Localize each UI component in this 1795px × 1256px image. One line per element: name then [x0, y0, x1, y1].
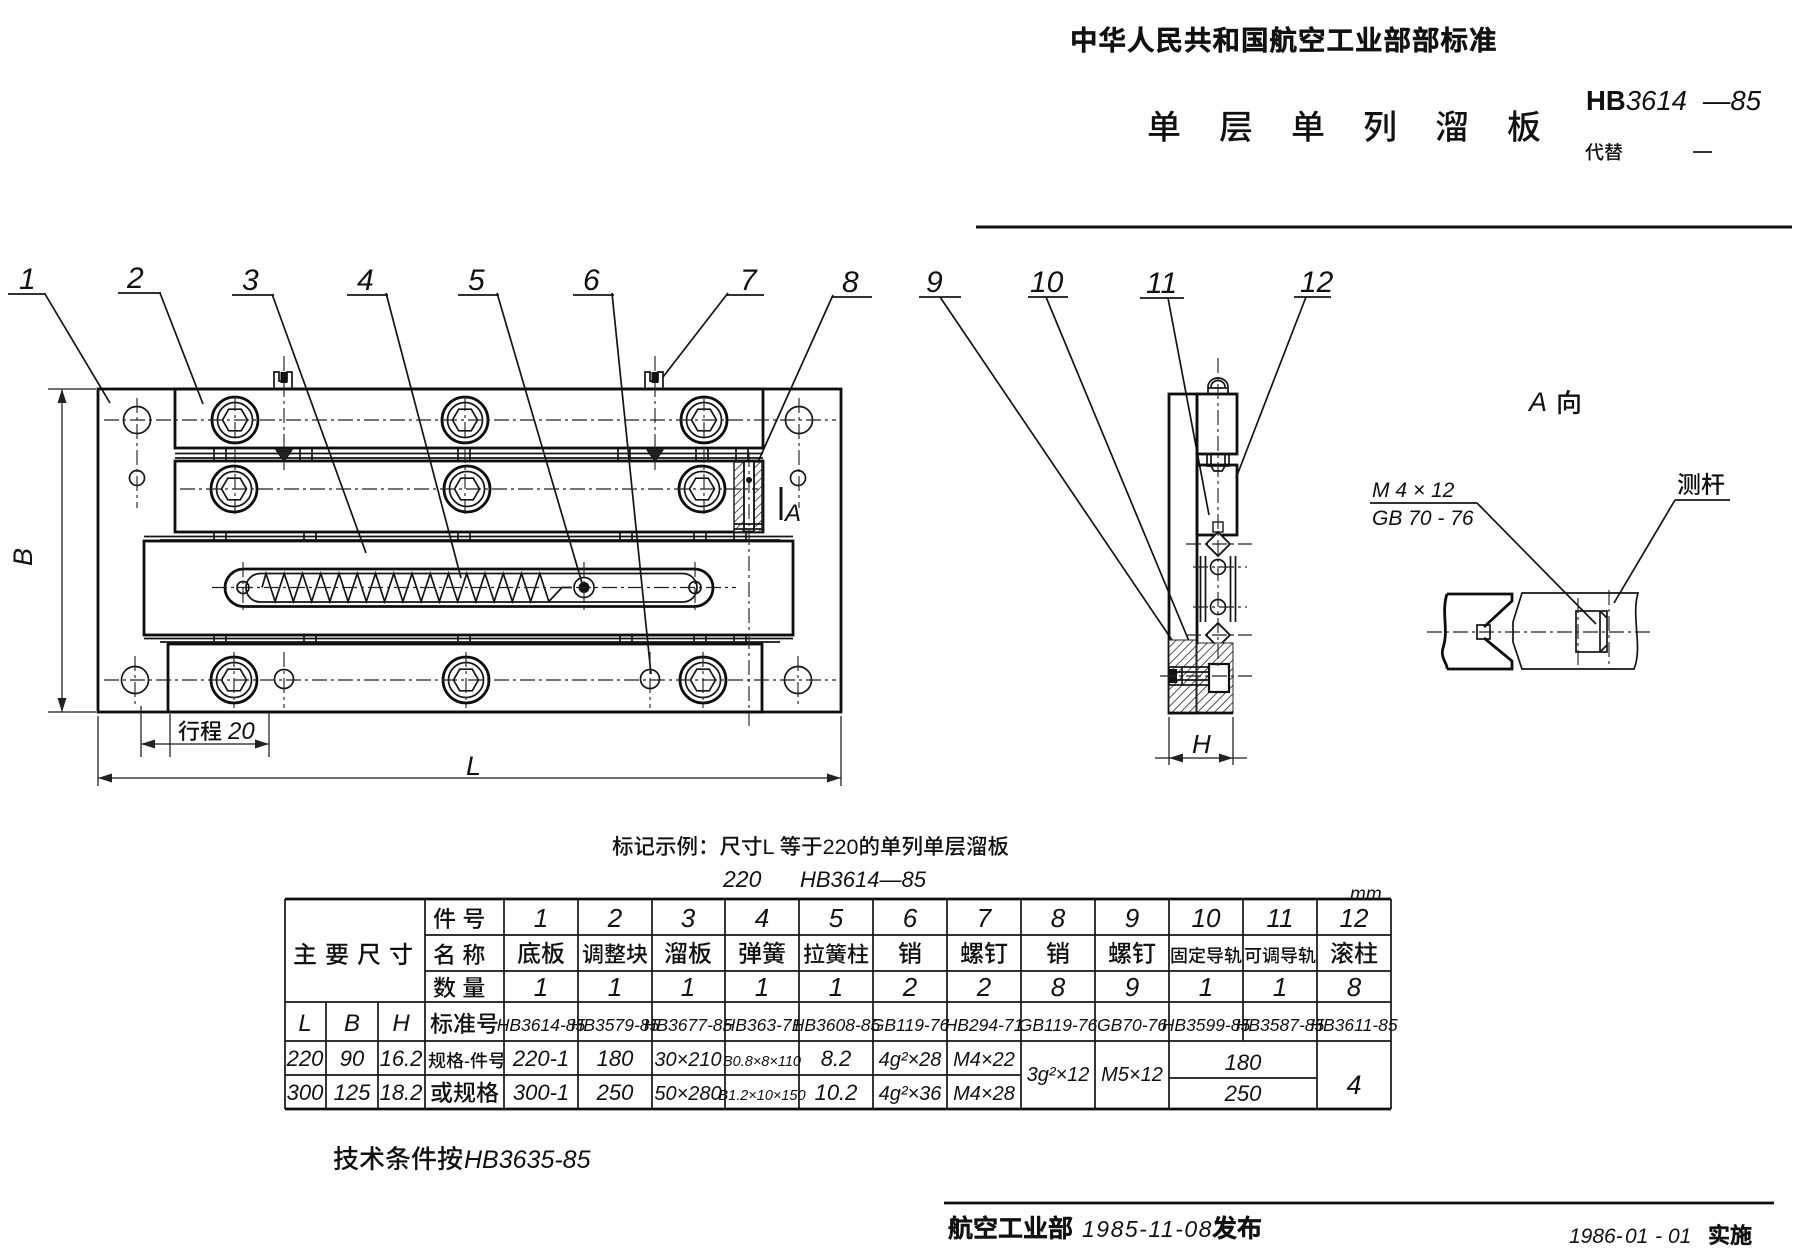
svg-text:调整块: 调整块: [582, 937, 648, 969]
svg-text:发布: 发布: [1211, 1209, 1262, 1245]
svg-text:7: 7: [977, 903, 993, 933]
svg-text:向: 向: [1556, 383, 1582, 420]
svg-text:HB3608-85: HB3608-85: [792, 1015, 881, 1035]
svg-text:溜板: 溜板: [664, 934, 712, 969]
svg-text:220-1: 220-1: [512, 1046, 569, 1071]
svg-text:M4×28: M4×28: [953, 1083, 1015, 1105]
svg-text:01: 01: [1668, 1225, 1691, 1248]
svg-text:90: 90: [340, 1046, 365, 1071]
svg-text:销: 销: [898, 934, 922, 969]
svg-text:A: A: [1527, 387, 1547, 417]
svg-text:9: 9: [1125, 972, 1139, 1002]
svg-text:标准号: 标准号: [430, 1005, 499, 1039]
svg-text:销: 销: [1046, 934, 1070, 969]
svg-text:航空工业部: 航空工业部: [948, 1209, 1073, 1245]
svg-text:1: 1: [755, 972, 769, 1002]
svg-text:16.2: 16.2: [380, 1046, 423, 1071]
svg-text:1985-11-08: 1985-11-08: [1082, 1216, 1213, 1242]
svg-text:300: 300: [287, 1080, 324, 1105]
svg-text:1: 1: [534, 903, 548, 933]
svg-text:HB3611-85: HB3611-85: [1310, 1015, 1398, 1035]
svg-text:250: 250: [1224, 1081, 1262, 1106]
svg-text:10.2: 10.2: [815, 1080, 858, 1105]
svg-text:9: 9: [1125, 903, 1139, 933]
svg-text:L: L: [298, 1010, 311, 1037]
svg-text:220: 220: [286, 1046, 324, 1071]
svg-text:8: 8: [1051, 903, 1066, 933]
svg-text:中华人民共和国航空工业部部标准: 中华人民共和国航空工业部部标准: [1070, 18, 1498, 58]
svg-text:HB294-71: HB294-71: [945, 1015, 1024, 1035]
svg-text:180: 180: [597, 1046, 634, 1071]
svg-text:2: 2: [126, 262, 144, 295]
svg-text:12: 12: [1300, 266, 1334, 299]
svg-text:2: 2: [607, 903, 623, 933]
svg-text:M5×12: M5×12: [1101, 1064, 1163, 1086]
svg-text:8: 8: [1051, 972, 1066, 1002]
svg-text:螺钉: 螺钉: [960, 934, 1008, 969]
svg-text:H: H: [392, 1010, 410, 1037]
svg-text:180: 180: [1225, 1050, 1262, 1075]
svg-text:4g²×28: 4g²×28: [879, 1049, 942, 1071]
svg-text:8: 8: [842, 266, 859, 299]
svg-text:8: 8: [1347, 972, 1362, 1002]
svg-text:HB3677-85: HB3677-85: [644, 1015, 733, 1035]
svg-text:10: 10: [1030, 266, 1064, 299]
svg-text:1: 1: [829, 972, 843, 1002]
svg-text:规格-件号: 规格-件号: [428, 1047, 506, 1073]
svg-text:250: 250: [596, 1080, 634, 1105]
svg-text:-: -: [1655, 1225, 1662, 1248]
svg-text:HB3635-85: HB3635-85: [464, 1146, 591, 1174]
svg-text:螺钉: 螺钉: [1108, 934, 1156, 969]
svg-text:300-1: 300-1: [513, 1080, 569, 1105]
svg-text:H: H: [1192, 729, 1211, 759]
svg-text:数 量: 数 量: [433, 969, 485, 1003]
svg-text:固定导轨: 固定导轨: [1170, 942, 1242, 968]
svg-text:滚柱: 滚柱: [1330, 934, 1378, 969]
svg-text:2: 2: [902, 972, 918, 1002]
svg-text:底板: 底板: [517, 934, 565, 969]
svg-text:30×210: 30×210: [654, 1049, 721, 1071]
svg-text:测杆: 测杆: [1677, 465, 1725, 500]
svg-text:实施: 实施: [1708, 1218, 1752, 1250]
svg-text:7: 7: [740, 264, 758, 297]
svg-text:1: 1: [19, 263, 36, 296]
svg-text:或规格: 或规格: [430, 1074, 499, 1108]
svg-text:行程: 行程: [178, 714, 222, 746]
svg-text:11: 11: [1146, 267, 1177, 300]
svg-text:单层单列溜板: 单层单列溜板: [1147, 100, 1579, 149]
svg-text:01: 01: [1625, 1225, 1648, 1248]
svg-text:3: 3: [681, 903, 696, 933]
svg-text:标记示例：尺寸L 等于220的单列单层溜板: 标记示例：尺寸L 等于220的单列单层溜板: [612, 830, 1009, 861]
svg-text:5: 5: [829, 903, 844, 933]
svg-text:4: 4: [755, 903, 769, 933]
svg-text:HB3614—85: HB3614—85: [1586, 85, 1762, 116]
svg-text:1: 1: [534, 972, 548, 1002]
svg-text:技术条件按: 技术条件按: [333, 1139, 463, 1176]
svg-text:mm: mm: [1350, 884, 1382, 905]
svg-text:M4×22: M4×22: [953, 1049, 1015, 1071]
svg-text:件 号: 件 号: [433, 900, 485, 934]
svg-text:名 称: 名 称: [433, 936, 485, 970]
svg-text:GB70-76: GB70-76: [1097, 1015, 1167, 1035]
svg-text:50×280: 50×280: [654, 1083, 721, 1105]
svg-text:125: 125: [334, 1080, 371, 1105]
svg-text:3: 3: [242, 264, 259, 297]
svg-text:5: 5: [468, 264, 485, 297]
svg-text:6: 6: [903, 903, 918, 933]
svg-text:11: 11: [1267, 903, 1294, 933]
svg-text:1986-: 1986-: [1569, 1225, 1623, 1248]
svg-text:3g²×12: 3g²×12: [1027, 1064, 1090, 1086]
svg-text:6: 6: [583, 264, 600, 297]
svg-text:1: 1: [1273, 972, 1287, 1002]
svg-text:1: 1: [681, 972, 695, 1002]
svg-text:1: 1: [1199, 972, 1213, 1002]
svg-text:HB3614—85: HB3614—85: [800, 867, 927, 892]
svg-text:B: B: [344, 1010, 360, 1037]
svg-text:B1.2×10×150: B1.2×10×150: [718, 1088, 805, 1104]
svg-text:20: 20: [227, 718, 255, 745]
svg-text:B: B: [8, 548, 38, 566]
svg-text:A: A: [783, 500, 801, 527]
svg-text:可调导轨: 可调导轨: [1244, 942, 1316, 968]
svg-text:GB119-76: GB119-76: [871, 1015, 950, 1035]
svg-text:2: 2: [976, 972, 992, 1002]
svg-text:4g²×36: 4g²×36: [879, 1083, 943, 1105]
svg-text:HB363-71: HB363-71: [723, 1015, 802, 1035]
svg-text:M 4 × 12: M 4 × 12: [1372, 479, 1455, 502]
svg-text:GB 70 - 76: GB 70 - 76: [1372, 507, 1474, 530]
svg-text:18.2: 18.2: [380, 1080, 423, 1105]
svg-text:4: 4: [357, 264, 374, 297]
svg-text:L: L: [466, 751, 481, 781]
svg-text:12: 12: [1340, 903, 1369, 933]
svg-text:220: 220: [722, 866, 762, 892]
svg-text:弹簧: 弹簧: [738, 934, 786, 969]
svg-text:主要尺寸: 主要尺寸: [293, 935, 421, 970]
svg-text:8.2: 8.2: [821, 1046, 852, 1071]
svg-text:B0.8×8×110: B0.8×8×110: [723, 1054, 801, 1070]
svg-text:10: 10: [1192, 903, 1221, 933]
svg-text:4: 4: [1346, 1070, 1361, 1100]
svg-text:1: 1: [608, 972, 622, 1002]
svg-text:代替: 代替: [1585, 138, 1623, 165]
svg-text:9: 9: [926, 266, 943, 299]
svg-text:拉簧柱: 拉簧柱: [803, 937, 869, 969]
svg-text:GB119-76: GB119-76: [1019, 1015, 1098, 1035]
